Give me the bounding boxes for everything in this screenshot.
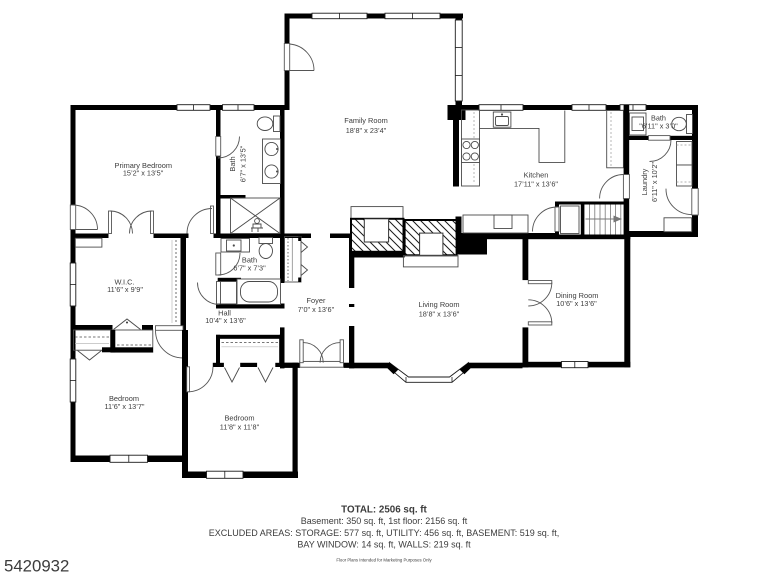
svg-text:6’7" x 13’5": 6’7" x 13’5" — [239, 145, 248, 182]
svg-text:Laundry: Laundry — [640, 168, 649, 195]
svg-text:15’2" x 13’5": 15’2" x 13’5" — [123, 169, 164, 178]
svg-text:Bath: Bath — [228, 156, 237, 171]
svg-text:11’6" x 13’7": 11’6" x 13’7" — [105, 402, 145, 411]
svg-text:10’4" x 13’6": 10’4" x 13’6" — [205, 316, 246, 325]
svg-text:EXCLUDED AREAS: STORAGE: 577 s: EXCLUDED AREAS: STORAGE: 577 sq. ft, UTI… — [209, 528, 559, 538]
svg-text:"6’11" x 3’0": "6’11" x 3’0" — [639, 122, 678, 131]
svg-text:6’7" x 7’3": 6’7" x 7’3" — [233, 263, 266, 272]
svg-text:BAY WINDOW: 14 sq. ft, WALLS:: BAY WINDOW: 14 sq. ft, WALLS: 219 sq. ft — [297, 540, 471, 550]
svg-text:Living Room: Living Room — [418, 300, 459, 309]
svg-text:17’11" x 13’6": 17’11" x 13’6" — [514, 180, 558, 189]
svg-text:TOTAL: 2506 sq. ft: TOTAL: 2506 sq. ft — [341, 504, 427, 515]
svg-text:Floor Plans Intended for Marke: Floor Plans Intended for Marketing Purpo… — [336, 558, 432, 563]
svg-text:Basement: 350 sq. ft, 1st floo: Basement: 350 sq. ft, 1st floor: 2156 sq… — [301, 516, 468, 526]
svg-text:18’8" x 13’6": 18’8" x 13’6" — [419, 310, 460, 319]
svg-text:10’6" x 13’6": 10’6" x 13’6" — [556, 299, 597, 308]
svg-text:18’8" x 23’4": 18’8" x 23’4" — [346, 126, 387, 135]
svg-text:11’6" x 9’9": 11’6" x 9’9" — [107, 285, 143, 294]
svg-text:Family Room: Family Room — [344, 116, 388, 125]
svg-text:7’0" x 13’6": 7’0" x 13’6" — [298, 305, 335, 314]
svg-text:Kitchen: Kitchen — [524, 171, 549, 180]
svg-text:5420932: 5420932 — [4, 557, 69, 576]
svg-text:Bedroom: Bedroom — [225, 414, 255, 423]
svg-text:6’11" x 10’2": 6’11" x 10’2" — [650, 162, 659, 202]
svg-text:11’8" x 11’8": 11’8" x 11’8" — [220, 423, 260, 432]
svg-text:Foyer: Foyer — [307, 296, 326, 305]
